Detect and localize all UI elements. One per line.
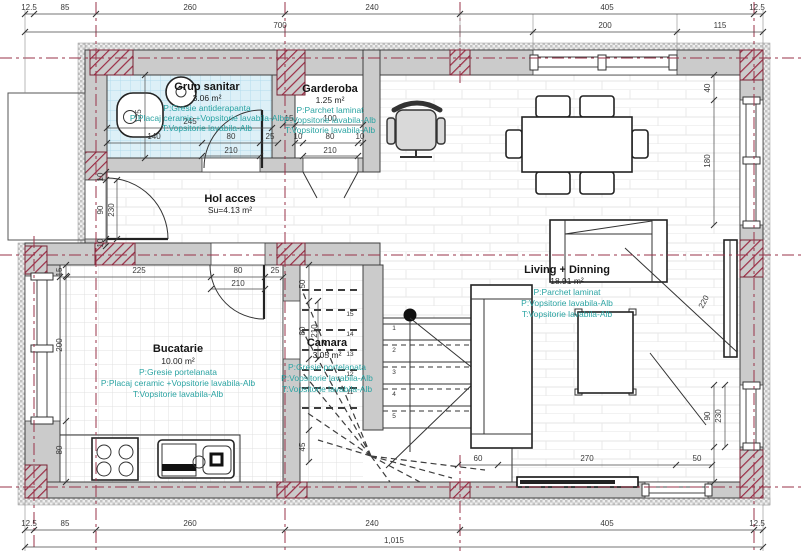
column bbox=[740, 240, 763, 277]
column bbox=[25, 246, 47, 274]
dim-label: 200 bbox=[598, 21, 612, 30]
cooktop bbox=[92, 438, 138, 480]
insulation-bottom bbox=[25, 498, 770, 505]
dim-label: 10 bbox=[96, 238, 105, 247]
room-finish: P:Placaj ceramic +Vopsitorie lavabila-Al… bbox=[101, 378, 256, 388]
window-right-upper bbox=[740, 97, 763, 228]
dim-label: 12.5 bbox=[749, 519, 765, 528]
dim-label: 200 bbox=[55, 338, 64, 352]
wall-wardrobe-living bbox=[363, 50, 380, 172]
room-finish: P:Gresie antiderapanta bbox=[163, 103, 251, 113]
room-area-pantry: 3.05 m² bbox=[313, 350, 342, 360]
adjacent-structure-outline bbox=[8, 93, 85, 240]
column bbox=[277, 243, 305, 265]
room-finish: T:Vopsitorie lavabila-Alb bbox=[285, 125, 376, 135]
dim-label: 240 bbox=[365, 519, 379, 528]
step-number: 13 bbox=[346, 351, 354, 358]
dim-label: 85 bbox=[61, 519, 70, 528]
coffee-table bbox=[575, 309, 636, 395]
stair-start-marker bbox=[404, 309, 417, 322]
dim-label-total: 1,015 bbox=[384, 536, 405, 545]
room-finish: T:Vopsitorie lavabila-Alb bbox=[522, 309, 613, 319]
dim-label: 45 bbox=[298, 442, 307, 451]
wall-mid-horizontal bbox=[25, 243, 380, 265]
column bbox=[740, 50, 763, 80]
wall-pantry-stair bbox=[363, 265, 383, 430]
step-number: 5 bbox=[392, 413, 396, 420]
dim-label: 700 bbox=[273, 21, 287, 30]
dim-label: 210 bbox=[323, 146, 337, 155]
room-finish: P:Parchet laminat bbox=[296, 105, 364, 115]
dim-label: 85 bbox=[61, 3, 70, 12]
dim-label: 405 bbox=[600, 519, 614, 528]
dim-label: 80 bbox=[234, 266, 243, 275]
insulation-left-bottom bbox=[18, 243, 25, 505]
dim-label: 210 bbox=[224, 146, 238, 155]
dim-label: 80 bbox=[55, 445, 64, 454]
dim-label: 140 bbox=[147, 132, 161, 141]
room-finish: P:Vopsitorie lavabila-Alb bbox=[284, 115, 376, 125]
dim-label: 15 bbox=[55, 267, 64, 276]
dim-label: 115 bbox=[714, 21, 727, 30]
dim-label: 260 bbox=[183, 3, 197, 12]
window-bottom bbox=[642, 482, 712, 498]
insulation-left-top bbox=[78, 43, 85, 243]
room-name-living: Living + Dinning bbox=[524, 264, 610, 276]
dim-label: 270 bbox=[580, 454, 594, 463]
dining-table bbox=[522, 117, 632, 172]
dim-label: 40 bbox=[703, 83, 712, 92]
dim-label: 80 bbox=[227, 132, 236, 141]
kitchen-sink bbox=[158, 440, 234, 478]
room-finish: P:Vopsitorie lavabila-Alb bbox=[281, 373, 373, 383]
insulation-right bbox=[763, 43, 770, 505]
room-name-hall: Hol acces bbox=[204, 193, 255, 205]
dim-label: 80 bbox=[298, 326, 307, 335]
dim-label: 210 bbox=[231, 279, 245, 288]
step-number: 4 bbox=[392, 391, 396, 398]
dim-label: 12.5 bbox=[21, 519, 37, 528]
dim-label: 12.5 bbox=[749, 3, 765, 12]
dim-label: 60 bbox=[474, 454, 483, 463]
room-finish: P:Gresie portelanata bbox=[288, 362, 366, 372]
dim-label: 90 bbox=[96, 205, 105, 214]
dim-label: 230 bbox=[714, 409, 723, 423]
step-number: 1 bbox=[392, 325, 396, 332]
dim-label: 240 bbox=[365, 3, 379, 12]
room-finish: P:Vopsitorie lavabila-Alb bbox=[521, 298, 613, 308]
room-area-kitchen: 10.00 m² bbox=[161, 356, 195, 366]
dim-label: 230 bbox=[107, 203, 116, 217]
room-finish: T:Vopsitorie lavabila-Alb bbox=[282, 384, 373, 394]
room-name-pantry: Camara bbox=[307, 337, 348, 349]
room-finish: P:Gresie portelanata bbox=[139, 367, 217, 377]
dim-label: 50 bbox=[693, 454, 702, 463]
room-name-wardrobe: Garderoba bbox=[302, 83, 359, 95]
step-number: 2 bbox=[392, 347, 396, 354]
room-finish: P:Parchet laminat bbox=[533, 287, 601, 297]
window-top bbox=[530, 50, 677, 75]
dim-label: 90 bbox=[703, 411, 712, 420]
room-finish: T:Vopsitorie lavabila-Alb bbox=[133, 389, 224, 399]
insulation-top bbox=[85, 43, 763, 50]
dim-label: 225 bbox=[132, 266, 146, 275]
room-area-living: 18.91 m² bbox=[550, 276, 584, 286]
dim-label: 12.5 bbox=[21, 3, 37, 12]
dim-label: 405 bbox=[600, 3, 614, 12]
floor-plan: 1 2 3 4 5 15 14 13 12 11 bbox=[0, 0, 805, 553]
step-number: 3 bbox=[392, 369, 396, 376]
room-name-kitchen: Bucatarie bbox=[153, 343, 203, 355]
dim-label: 25 bbox=[271, 266, 280, 275]
dim-label: 260 bbox=[183, 519, 197, 528]
floor-plan-canvas: 1 2 3 4 5 15 14 13 12 11 bbox=[0, 0, 805, 553]
dim-label: 50 bbox=[298, 279, 307, 288]
column bbox=[277, 50, 305, 95]
column bbox=[740, 450, 763, 498]
room-name-bath: Grup sanitar bbox=[174, 81, 240, 93]
dim-label: 210 bbox=[310, 324, 319, 338]
column bbox=[25, 465, 47, 498]
dim-label: 25 bbox=[266, 132, 275, 141]
step-number: 15 bbox=[346, 311, 354, 318]
column bbox=[277, 482, 307, 498]
room-area-wardrobe: 1.25 m² bbox=[316, 95, 345, 105]
room-finish: P:Placaj ceramic +Vopsitorie lavabila-Al… bbox=[130, 113, 285, 123]
window-right-lower bbox=[740, 382, 763, 450]
room-area-bath: 3.06 m² bbox=[193, 93, 222, 103]
dim-label: 180 bbox=[703, 154, 712, 168]
radiator bbox=[517, 477, 638, 487]
step-number: 14 bbox=[346, 331, 354, 338]
room-area-hall: Su=4.13 m² bbox=[208, 205, 252, 215]
dim-label: 10 bbox=[96, 172, 105, 181]
room-finish: T:Vopsitorie lavabila-Alb bbox=[162, 123, 253, 133]
